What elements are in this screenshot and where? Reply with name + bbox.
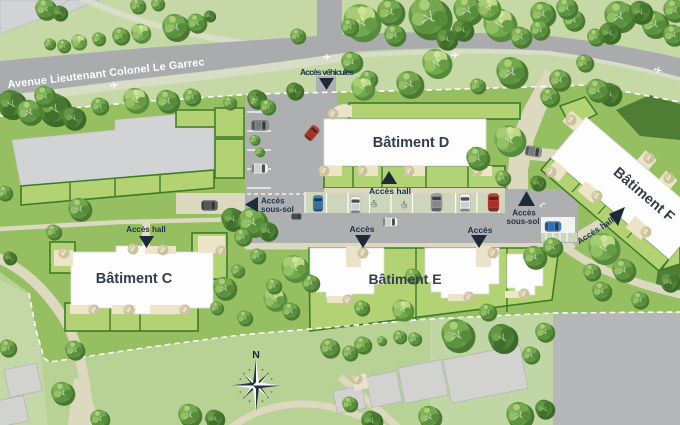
svg-text:Bâtiment D: Bâtiment D [373,135,450,151]
svg-text:sous-sol: sous-sol [261,205,294,214]
svg-text:N: N [252,349,260,361]
svg-text:Bâtiment C: Bâtiment C [96,271,173,287]
svg-text:Accès: Accès [467,225,492,235]
svg-text:Accès: Accès [349,224,374,234]
svg-text:Bâtiment E: Bâtiment E [368,271,441,287]
svg-text:Accès véhicules: Accès véhicules [300,67,354,77]
svg-text:Accès hall: Accès hall [126,225,166,234]
svg-text:Accès hall: Accès hall [369,186,411,196]
svg-text:sous-sol: sous-sol [507,217,540,226]
